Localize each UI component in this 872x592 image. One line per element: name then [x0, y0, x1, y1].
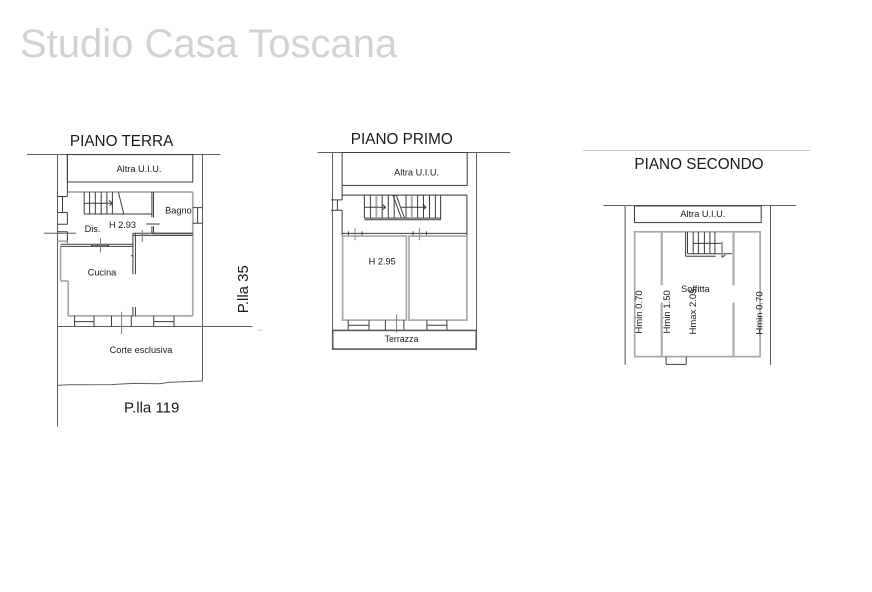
- svg-text:PIANO SECONDO: PIANO SECONDO: [634, 156, 763, 173]
- svg-text:Soffitta: Soffitta: [681, 284, 710, 294]
- svg-text:P.lla 119: P.lla 119: [124, 399, 179, 416]
- svg-text:P.lla 35: P.lla 35: [235, 265, 252, 313]
- svg-text:H 2.95: H 2.95: [369, 256, 396, 266]
- svg-text:Altra U.I.U.: Altra U.I.U.: [117, 164, 162, 174]
- svg-text:PIANO PRIMO: PIANO PRIMO: [351, 131, 453, 148]
- svg-text:Studio Casa Toscana: Studio Casa Toscana: [20, 22, 398, 66]
- svg-text:Hmin 0.70: Hmin 0.70: [634, 290, 645, 333]
- svg-text:H 2.93: H 2.93: [109, 220, 136, 230]
- svg-text:Hmin 0.70: Hmin 0.70: [754, 291, 765, 334]
- svg-text:Bagno: Bagno: [165, 205, 192, 215]
- svg-text:Altra U.I.U.: Altra U.I.U.: [680, 209, 725, 219]
- svg-text:Dis.: Dis.: [85, 224, 101, 234]
- svg-text:Cucina: Cucina: [88, 267, 117, 277]
- svg-text:Altra U.I.U.: Altra U.I.U.: [394, 168, 439, 178]
- svg-text:Hmin 1.50: Hmin 1.50: [662, 290, 673, 333]
- svg-text:PIANO TERRA: PIANO TERRA: [70, 133, 174, 150]
- svg-text:Corte esclusiva: Corte esclusiva: [110, 345, 174, 355]
- svg-text:Terrazza: Terrazza: [385, 334, 419, 344]
- svg-text:Hmax 2.05: Hmax 2.05: [688, 289, 699, 335]
